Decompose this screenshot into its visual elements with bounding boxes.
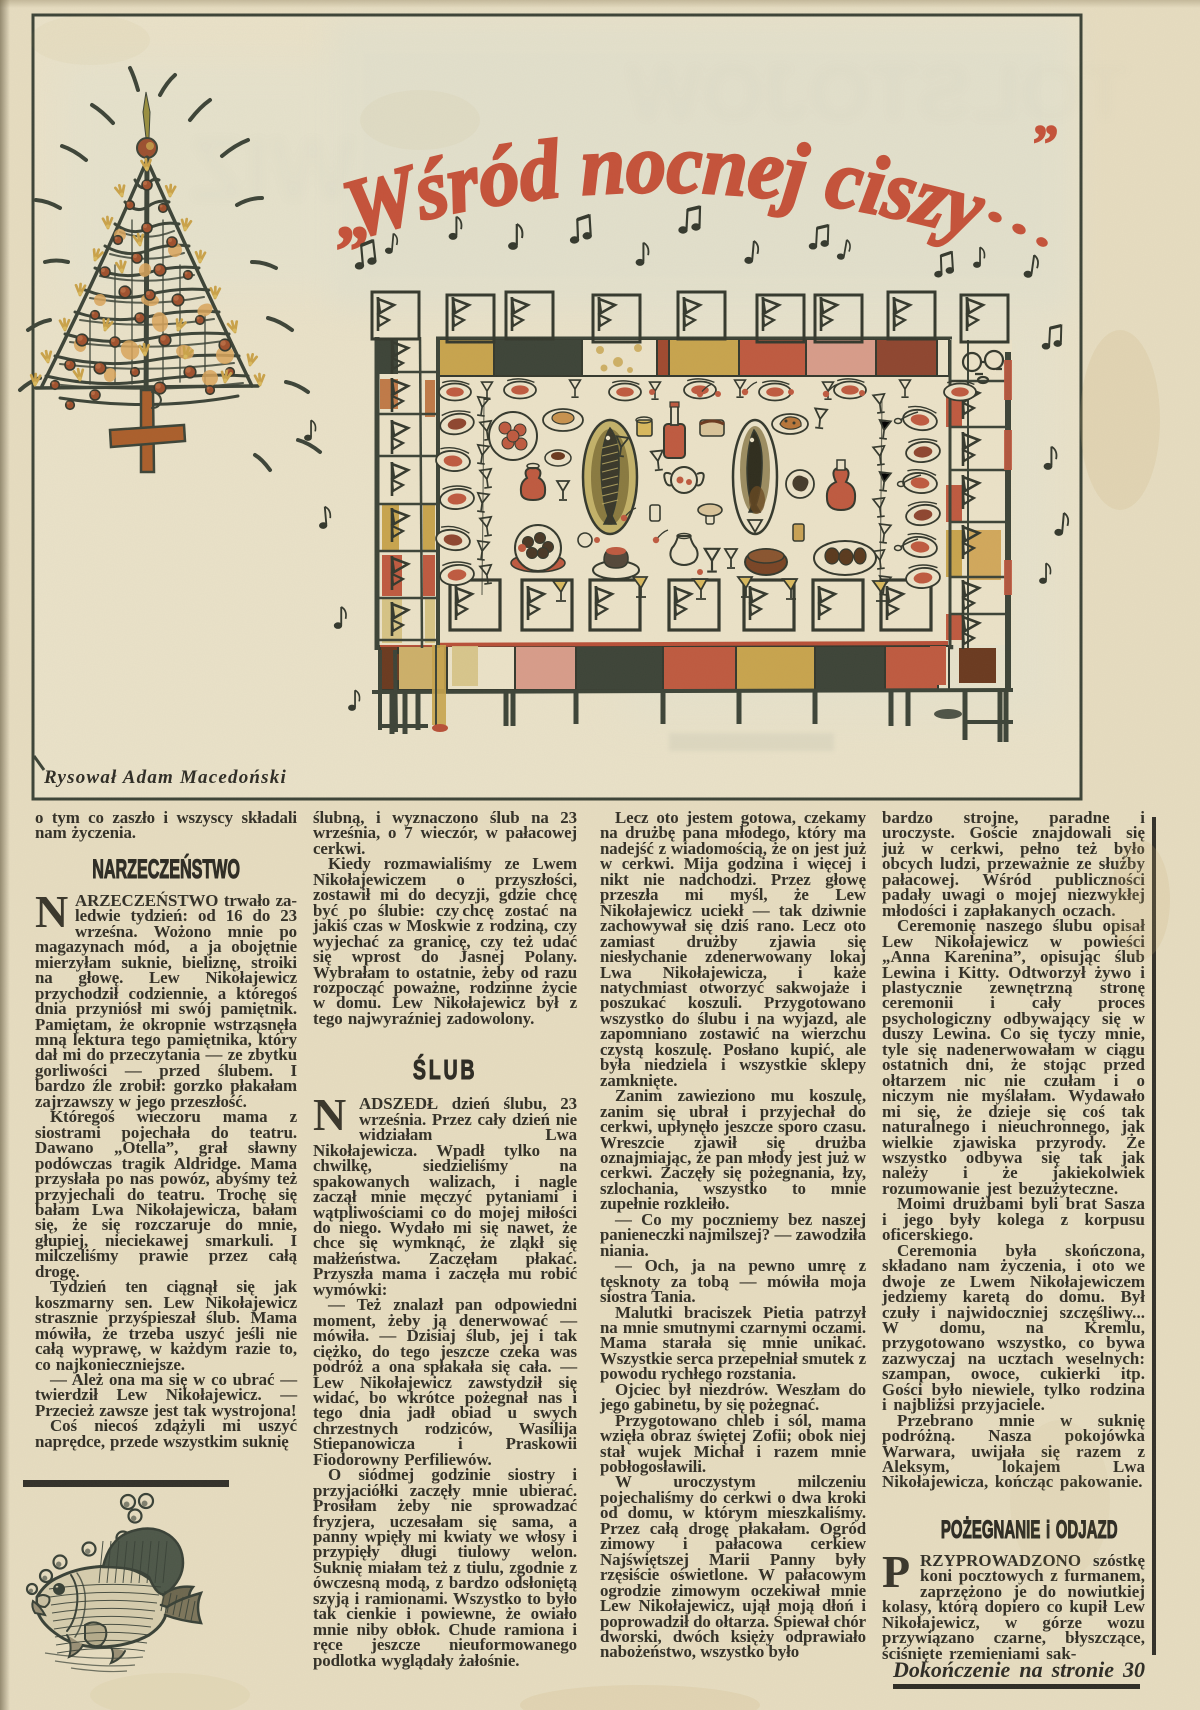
svg-text:”: ” bbox=[1030, 114, 1057, 174]
svg-text:WIZ: WIZ bbox=[190, 120, 355, 220]
svg-text:Wśród nocnej ciszy: Wśród nocnej ciszy bbox=[334, 118, 995, 257]
